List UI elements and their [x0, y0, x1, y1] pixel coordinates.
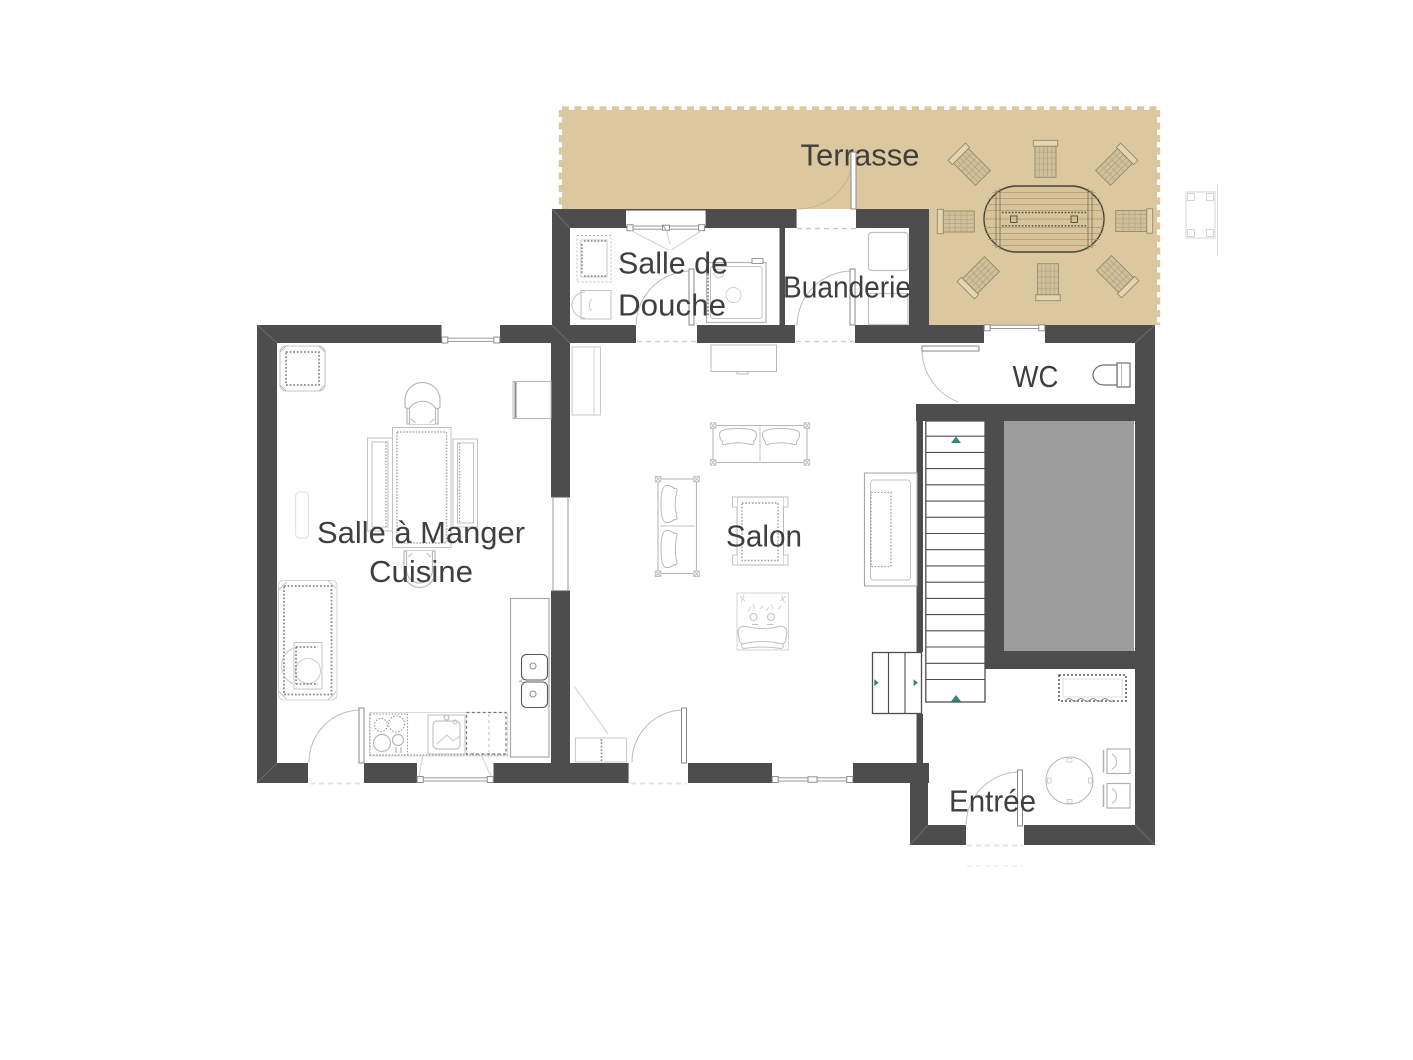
- svg-text:Buanderie: Buanderie: [783, 270, 911, 305]
- svg-text:Salle à Manger: Salle à Manger: [317, 515, 525, 550]
- svg-text:Salon: Salon: [726, 519, 802, 554]
- svg-text:Salle de: Salle de: [618, 246, 728, 281]
- svg-text:Entrée: Entrée: [949, 784, 1036, 819]
- svg-text:WC: WC: [1013, 359, 1059, 394]
- svg-text:Terrasse: Terrasse: [801, 138, 920, 173]
- svg-text:Cuisine: Cuisine: [369, 554, 473, 589]
- svg-text:Douche: Douche: [618, 288, 726, 323]
